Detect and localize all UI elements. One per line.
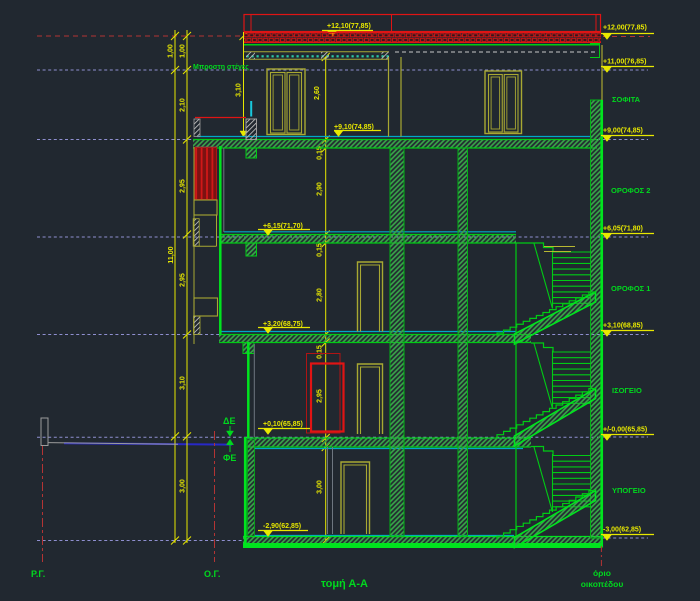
svg-text:τομή Α-Α: τομή Α-Α — [321, 578, 368, 590]
svg-text:2,10: 2,10 — [180, 98, 187, 112]
svg-text:ΙΣΟΓΕΙΟ: ΙΣΟΓΕΙΟ — [612, 386, 642, 395]
svg-text:3,10: 3,10 — [236, 83, 243, 97]
svg-text:-2,90(62,85): -2,90(62,85) — [263, 523, 301, 530]
svg-text:Μπροστη στέγες: Μπροστη στέγες — [193, 64, 249, 71]
svg-text:ΟΡΟΦΟΣ 2: ΟΡΟΦΟΣ 2 — [611, 186, 650, 195]
svg-text:2,95: 2,95 — [317, 389, 324, 403]
svg-text:+6,05(71,80): +6,05(71,80) — [603, 226, 643, 233]
svg-text:+0,10(65,85): +0,10(65,85) — [263, 421, 303, 428]
svg-text:11,00: 11,00 — [168, 246, 175, 263]
svg-text:ΦΕ: ΦΕ — [223, 453, 236, 463]
svg-text:0,15: 0,15 — [317, 345, 324, 359]
svg-text:3,00: 3,00 — [180, 479, 187, 493]
svg-text:ΟΡΟΦΟΣ 1: ΟΡΟΦΟΣ 1 — [611, 284, 650, 293]
svg-text:-3,00(62,85): -3,00(62,85) — [603, 527, 641, 534]
svg-text:+9,00(74,85): +9,00(74,85) — [603, 128, 643, 135]
svg-text:Ο.Γ.: Ο.Γ. — [204, 569, 220, 579]
svg-text:3,00: 3,00 — [317, 480, 324, 494]
svg-text:+12,00(77,85): +12,00(77,85) — [603, 25, 647, 32]
svg-text:2,80: 2,80 — [317, 288, 324, 302]
svg-text:οικοπέδου: οικοπέδου — [581, 579, 624, 589]
svg-text:2,90: 2,90 — [317, 182, 324, 196]
svg-text:ΣΟΦΙΤΑ: ΣΟΦΙΤΑ — [612, 95, 641, 104]
svg-text:0,15: 0,15 — [317, 243, 324, 257]
svg-text:2,95: 2,95 — [180, 179, 187, 193]
svg-text:2,95: 2,95 — [180, 273, 187, 287]
svg-text:3,10: 3,10 — [180, 376, 187, 390]
svg-text:+11,00(76,85): +11,00(76,85) — [603, 59, 646, 66]
svg-text:Ρ.Γ.: Ρ.Γ. — [31, 569, 45, 579]
svg-text:ΔΕ: ΔΕ — [223, 416, 235, 426]
svg-text:+/-0,00(65,85): +/-0,00(65,85) — [603, 427, 647, 434]
svg-text:+3,10(68,85): +3,10(68,85) — [603, 323, 643, 330]
svg-text:+12,10(77,85): +12,10(77,85) — [327, 23, 371, 30]
svg-text:1,00: 1,00 — [180, 44, 187, 58]
svg-text:2,60: 2,60 — [314, 86, 321, 100]
svg-text:1,00: 1,00 — [168, 44, 175, 58]
svg-text:ΥΠΟΓΕΙΟ: ΥΠΟΓΕΙΟ — [612, 486, 646, 495]
svg-text:όριο: όριο — [593, 568, 611, 578]
